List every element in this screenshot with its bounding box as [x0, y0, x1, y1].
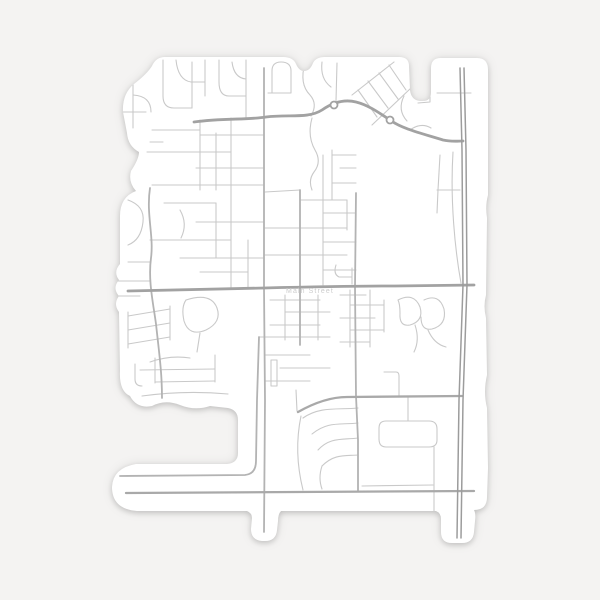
city-map-sticker: Main Street [0, 0, 600, 600]
roundabout-icon [331, 102, 338, 109]
street-name-label: Main Street [286, 288, 334, 295]
roundabout-icon [387, 117, 394, 124]
minor-road-path [418, 62, 430, 103]
sticker-product-image: Main Street [0, 0, 600, 600]
medium-road-path [264, 68, 265, 532]
